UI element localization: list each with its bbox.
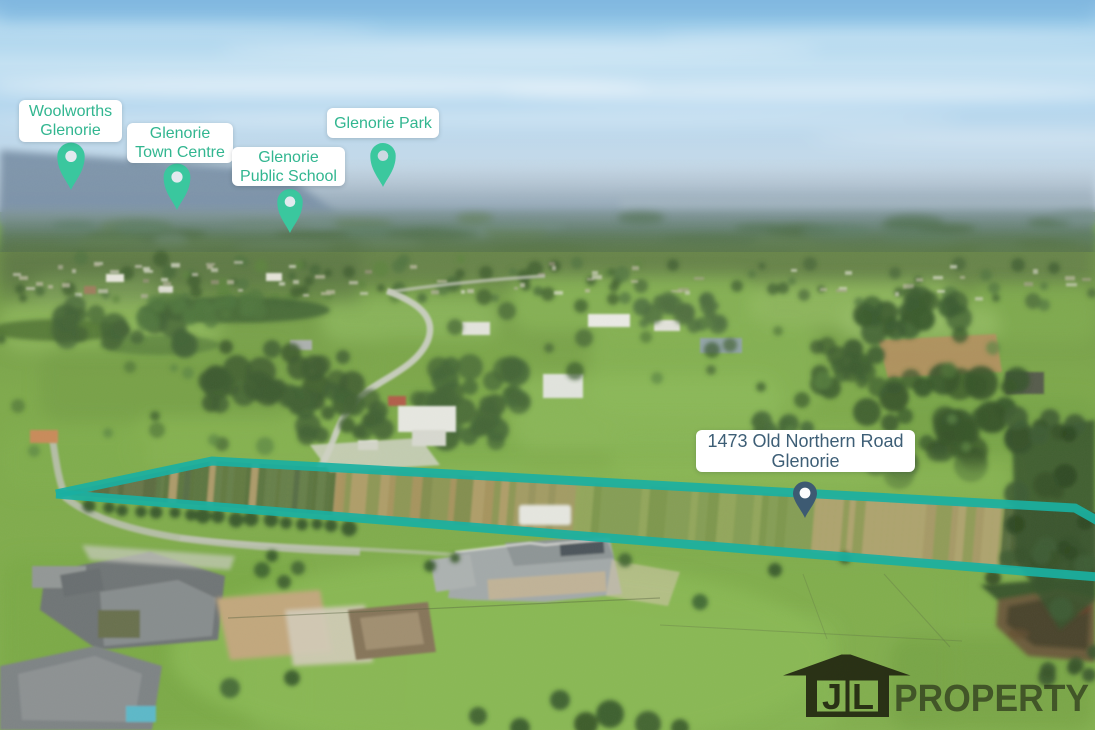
svg-text:PROPERTY: PROPERTY [894,678,1089,720]
svg-text:J: J [822,676,842,717]
svg-text:L: L [852,676,874,717]
